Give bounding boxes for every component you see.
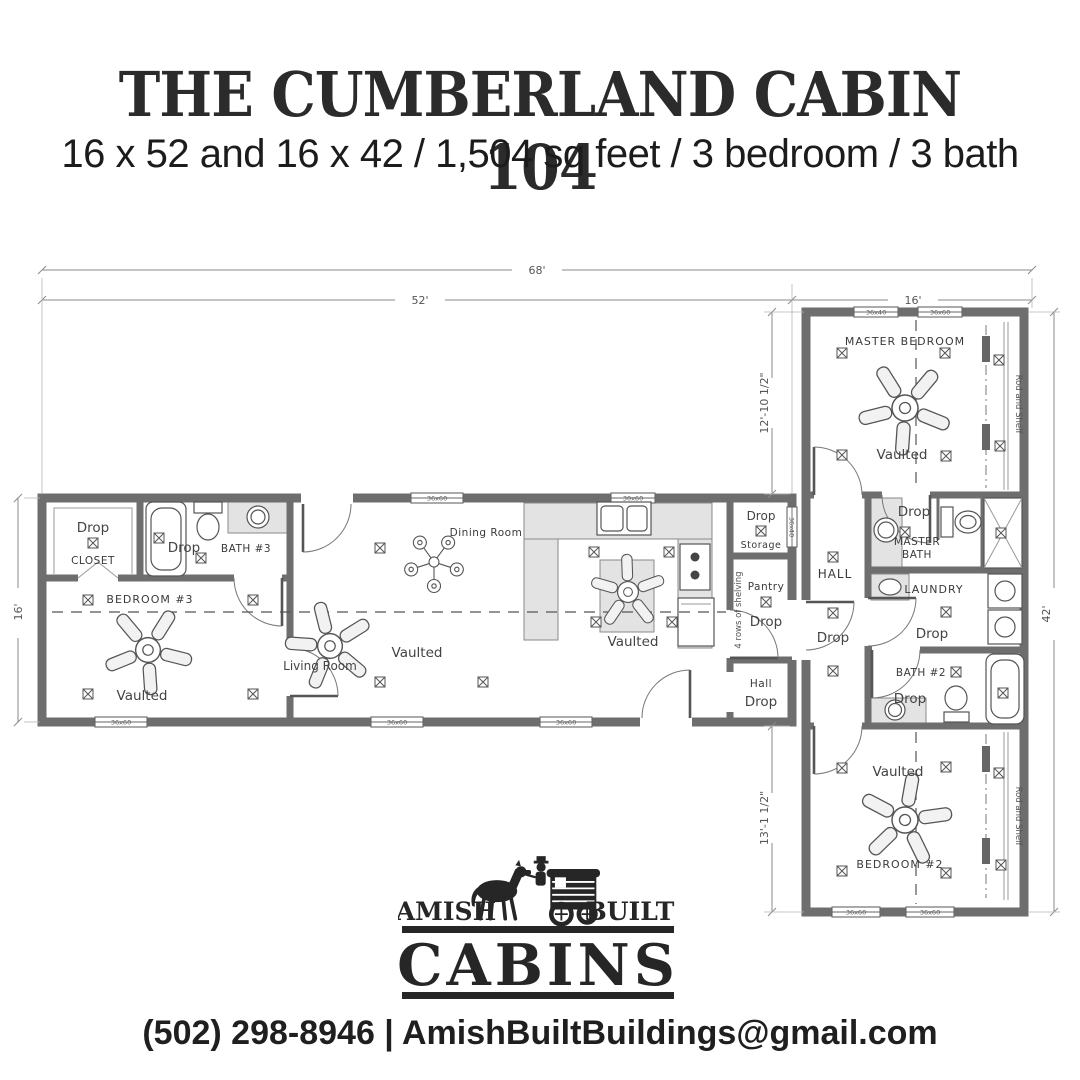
master-bath-label-2: BATH [902, 549, 932, 561]
storage-drop-label: Drop [747, 509, 776, 523]
kitchen-vaulted-label: Vaulted [608, 634, 659, 650]
ceiling-fan-bedroom2 [857, 767, 958, 872]
bedroom3-vaulted-label: Vaulted [117, 688, 168, 704]
window: 36x60 [540, 717, 592, 727]
logo-built-text: BUILT [586, 897, 675, 926]
hall-wing-label: HALL [818, 567, 853, 581]
toilet-icon [944, 686, 969, 722]
window: 36x40 [787, 507, 797, 547]
svg-text:13'-1 1/2": 13'-1 1/2" [758, 791, 771, 845]
closet-label: CLOSET [71, 555, 115, 567]
window: 36x60 [832, 907, 880, 917]
svg-text:36x60: 36x60 [846, 908, 866, 916]
fridge-icon [678, 598, 714, 646]
window: 36x60 [371, 717, 423, 727]
bedroom2-rod-shelf-label: Rod and Shelf [1013, 787, 1023, 847]
contact-info: (502) 298-8946 | AmishBuiltBuildings@gma… [0, 1014, 1080, 1053]
svg-text:36x60: 36x60 [920, 908, 940, 916]
window: 36x60 [906, 907, 954, 917]
svg-text:12'-10 1/2": 12'-10 1/2" [758, 372, 771, 433]
svg-text:16': 16' [12, 603, 25, 620]
pantry-label: Pantry [748, 581, 785, 593]
window: 36x60 [95, 717, 147, 727]
toilet-icon [941, 507, 981, 537]
bath3-label: BATH #3 [221, 543, 271, 555]
bedroom2-vaulted-label: Vaulted [873, 764, 924, 780]
window: 36x60 [411, 493, 463, 503]
toilet-icon [194, 502, 222, 540]
svg-text:30x60: 30x60 [623, 494, 643, 502]
hall-main-drop-label: Drop [745, 694, 777, 710]
dimension-main-depth: 16' [12, 494, 25, 726]
laundry-drop-label: Drop [916, 626, 948, 642]
window: 36x60 [918, 307, 962, 317]
bath2-drop-label: Drop [894, 691, 926, 707]
svg-text:36x60: 36x60 [556, 718, 576, 726]
dining-room-label: Dining Room [450, 527, 523, 539]
bath3-drop-label: Drop [168, 540, 200, 556]
laundry-label: LAUNDRY [904, 583, 963, 596]
window: 36x40 [854, 307, 898, 317]
bathtub-icon [146, 502, 186, 576]
svg-text:36x40: 36x40 [788, 517, 796, 537]
dimension-main-width: 52' [38, 294, 796, 307]
svg-text:36x60: 36x60 [930, 308, 950, 316]
pantry-drop-label: Drop [750, 614, 782, 630]
washer-dryer-icon [988, 574, 1022, 644]
logo-cabins-text: CABINS [398, 932, 678, 999]
svg-text:36x40: 36x40 [866, 308, 886, 316]
closet-drop-label: Drop [77, 520, 109, 536]
master-closet [982, 322, 1008, 490]
bedroom2-label: BEDROOM #2 [856, 858, 943, 871]
svg-text:36x60: 36x60 [111, 718, 131, 726]
bedroom3-label: BEDROOM #3 [106, 593, 193, 606]
living-vaulted-label: Vaulted [392, 645, 443, 661]
master-bedroom-label: MASTER BEDROOM [845, 335, 965, 348]
logo-amish-text: AMISH [398, 897, 496, 926]
hall-wing-drop-label: Drop [817, 630, 849, 646]
svg-text:36x60: 36x60 [427, 494, 447, 502]
master-bath-label-1: MASTER [894, 536, 940, 548]
dimension-wing-depth: 42' [1040, 308, 1058, 916]
svg-text:42': 42' [1040, 605, 1053, 622]
bath2-label: BATH #2 [896, 667, 946, 679]
svg-text:16': 16' [904, 294, 921, 307]
dimension-wing-upper: 12'-10 1/2" [758, 308, 776, 498]
svg-text:52': 52' [411, 294, 428, 307]
living-room-label: Living Room [283, 659, 357, 673]
dimension-wing-width: 16' [792, 294, 1036, 307]
svg-text:36x60: 36x60 [387, 718, 407, 726]
pantry-shelving-label: 4 rows of shelving [734, 571, 744, 648]
stove-icon [680, 544, 710, 590]
kitchen-sink-icon [597, 502, 651, 535]
storage-label: Storage [741, 540, 782, 551]
logo-divider-bottom [402, 992, 674, 999]
bedroom2-closet [982, 732, 1008, 900]
hall-main-label: Hall [750, 678, 772, 690]
master-rod-shelf-label: Rod and Shelf [1013, 375, 1023, 435]
utility-sink-icon [879, 579, 901, 595]
master-vaulted-label: Vaulted [877, 447, 928, 463]
sink-icon [247, 506, 269, 528]
dimension-overall: 68' [38, 264, 1036, 277]
master-bath-drop-label: Drop [898, 504, 930, 520]
svg-text:68': 68' [528, 264, 545, 277]
dimension-wing-lower: 13'-1 1/2" [758, 722, 776, 916]
amish-built-cabins-logo: AMISH BUILT CABINS [398, 856, 678, 1006]
